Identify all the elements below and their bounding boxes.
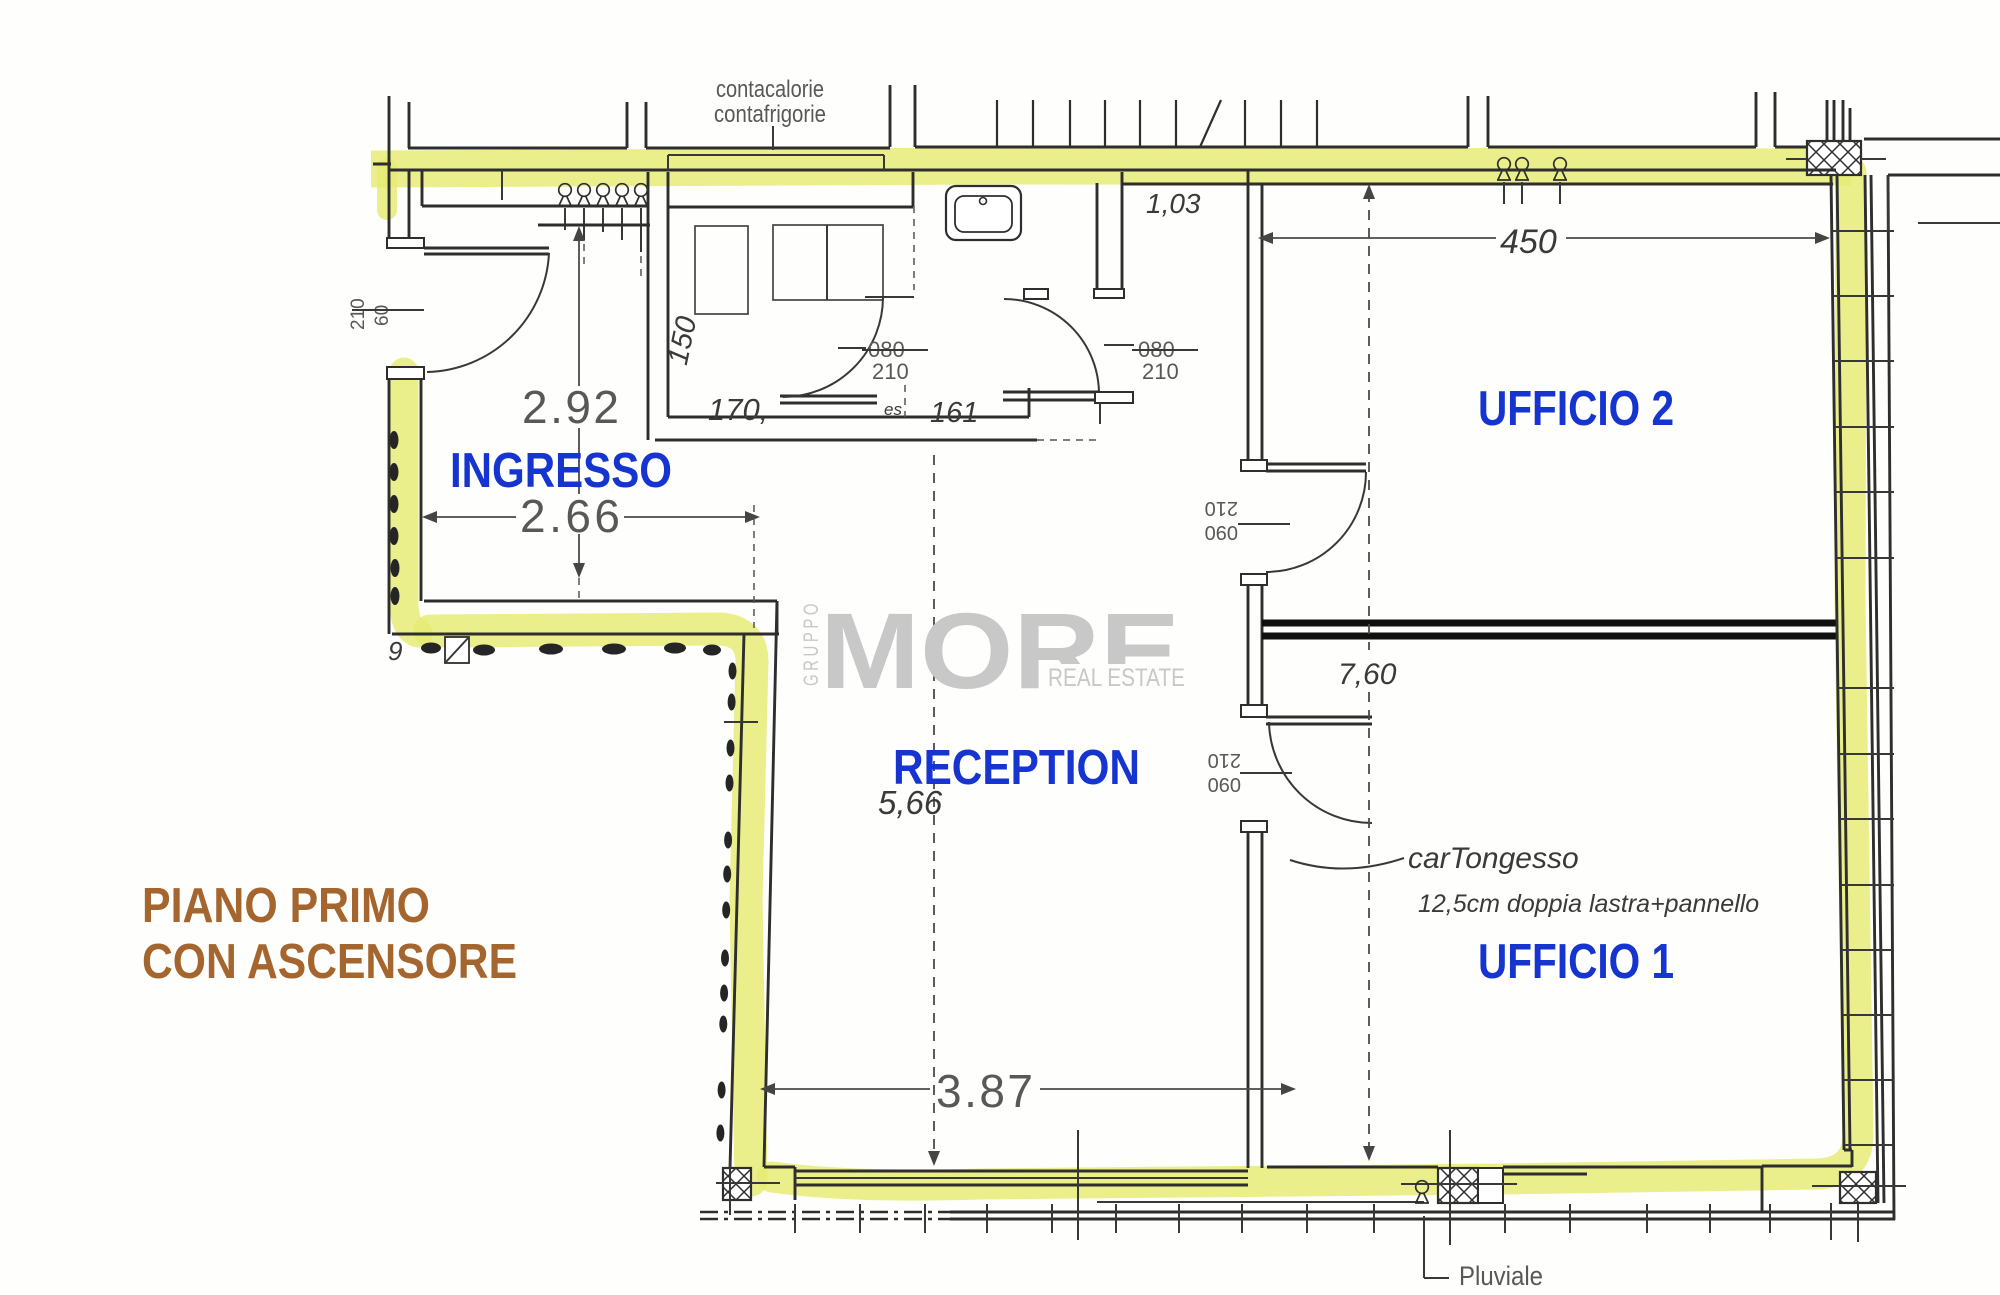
svg-text:REAL ESTATE: REAL ESTATE: [1048, 664, 1185, 692]
svg-text:210: 210: [1205, 497, 1238, 519]
svg-text:161: 161: [930, 397, 978, 429]
svg-text:170,: 170,: [708, 392, 768, 427]
svg-text:INGRESSO: INGRESSO: [450, 444, 672, 498]
svg-text:contafrigorie: contafrigorie: [714, 101, 826, 128]
svg-text:contacalorie: contacalorie: [716, 76, 824, 103]
svg-text:MORE: MORE: [820, 590, 1180, 711]
svg-text:UFFICIO 2: UFFICIO 2: [1478, 382, 1674, 436]
svg-text:210: 210: [1208, 749, 1241, 771]
svg-text:PIANO PRIMO: PIANO PRIMO: [142, 879, 430, 933]
svg-text:3.87: 3.87: [936, 1065, 1033, 1117]
svg-text:1,03: 1,03: [1146, 188, 1201, 219]
svg-text:090: 090: [1205, 521, 1238, 543]
svg-text:carTongesso: carTongesso: [1408, 842, 1579, 875]
svg-text:RECEPTION: RECEPTION: [893, 741, 1140, 795]
svg-text:450: 450: [1500, 223, 1557, 261]
svg-text:UFFICIO 1: UFFICIO 1: [1478, 935, 1674, 989]
svg-text:210: 210: [1142, 359, 1179, 384]
svg-text:9: 9: [388, 636, 402, 666]
svg-text:12,5cm doppia lastra+pannello: 12,5cm doppia lastra+pannello: [1418, 890, 1759, 918]
svg-text:210: 210: [872, 359, 909, 384]
svg-text:2.92: 2.92: [522, 381, 619, 433]
svg-text:es: es: [884, 400, 902, 419]
svg-text:CON ASCENSORE: CON ASCENSORE: [142, 935, 517, 989]
svg-text:210: 210: [348, 298, 369, 330]
svg-text:60: 60: [372, 305, 393, 326]
svg-text:090: 090: [1208, 773, 1241, 795]
svg-text:Pluviale: Pluviale: [1459, 1261, 1543, 1291]
svg-text:7,60: 7,60: [1338, 658, 1397, 691]
